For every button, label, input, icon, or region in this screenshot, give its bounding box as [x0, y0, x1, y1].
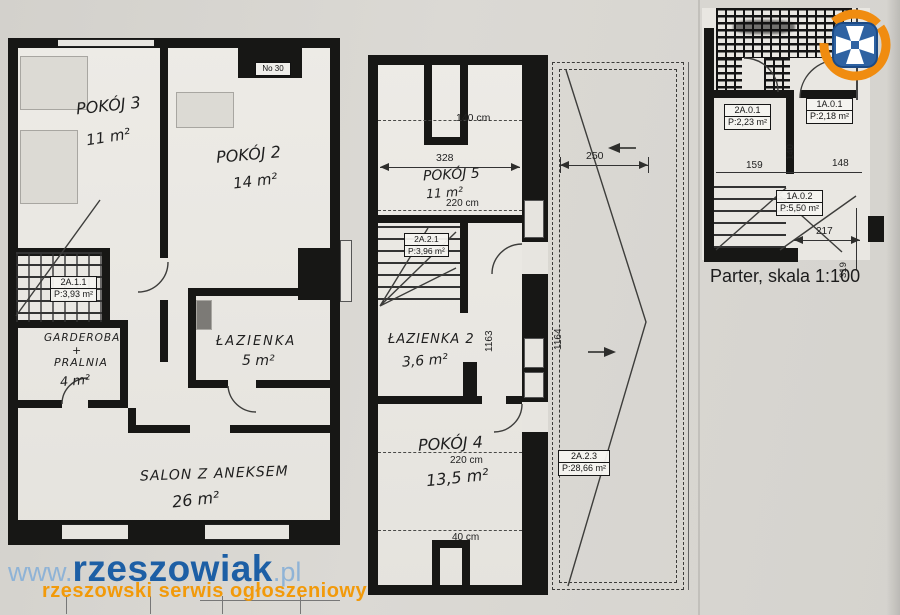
door-arc: [494, 404, 522, 432]
dim-220cm-bottom: 220 cm: [450, 455, 483, 466]
dim-328: 328: [436, 152, 454, 164]
door-arc: [138, 262, 168, 292]
door-arc: [744, 58, 778, 92]
stair-area-box: 2A.1.1 P:3,93 m²: [50, 276, 97, 302]
room-id: 2A.0.1: [725, 105, 770, 117]
dim-220cm-top: 220 cm: [446, 198, 479, 209]
stair-area-box: 2A.2.1 P:3,96 m²: [404, 233, 449, 257]
room-label-pralnia: PRALNIA: [54, 356, 108, 369]
room-area-box-1a02: 1A.0.2 P:5,50 m²: [776, 190, 823, 216]
dim-1164: 1164: [553, 294, 564, 350]
room-label-lazienka2: ŁAZIENKA 2: [388, 332, 475, 347]
arrowhead: [380, 163, 389, 171]
rzeszowiak-logo: [816, 6, 894, 84]
arrowhead: [560, 161, 569, 169]
dim-140cm-top: 140 cm: [456, 112, 490, 124]
dim-140: 140: [785, 124, 796, 160]
plan-caption: Parter, skala 1:100: [710, 266, 860, 287]
arrowhead: [639, 161, 648, 169]
plan-number-tag: No 30: [255, 62, 291, 76]
door-arc: [492, 244, 522, 274]
scanned-floor-plan-photo: No 30 POKÓJ 3 11 m² POKÓJ 2 14 m² 2A.1.1…: [0, 0, 900, 615]
room-label-lazienka: ŁAZIENKA: [216, 334, 296, 349]
attic-id: 2A.2.3: [559, 451, 609, 463]
room-area: P:2,23 m²: [725, 117, 770, 128]
dim-148: 148: [832, 158, 849, 169]
dim-159: 159: [746, 160, 763, 171]
room-label-garderoba: GARDEROBA: [44, 332, 120, 344]
room-area: P:2,18 m²: [807, 111, 852, 122]
area-label-lazienka: 5 m²: [242, 353, 275, 369]
arrowhead: [851, 236, 860, 244]
room-id: 1A.0.1: [807, 99, 852, 111]
arrowhead: [511, 163, 520, 171]
stair-area: P:3,93 m²: [51, 289, 96, 300]
dim-1163: 1163: [484, 296, 495, 352]
area-label-garderoba: 4 m²: [59, 373, 90, 391]
attic-area-box: 2A.2.3 P:28,66 m²: [558, 450, 610, 476]
area-label-lazienka2: 3,6 m²: [401, 351, 448, 370]
room-label-pokoj5: POKÓJ 5: [423, 166, 481, 185]
stair-id: 2A.2.1: [405, 234, 448, 246]
stair-area: P:3,96 m²: [405, 246, 448, 257]
room-id: 1A.0.2: [777, 191, 822, 203]
attic-area: P:28,66 m²: [559, 463, 609, 474]
stair-id: 2A.1.1: [51, 277, 96, 289]
room-area-box-2a01: 2A.0.1 P:2,23 m²: [724, 104, 771, 130]
room-area: P:5,50 m²: [777, 203, 822, 214]
dim-40cm-bottom: 40 cm: [452, 532, 479, 543]
dim-217: 217: [816, 226, 833, 237]
door-arc: [228, 386, 256, 412]
room-label-pokoj4: POKÓJ 4: [418, 432, 484, 454]
watermark-tagline: rzeszowski serwis ogłoszeniowy: [42, 580, 367, 603]
dim-250: 250: [586, 150, 604, 162]
room-area-box-1a01: 1A.0.1 P:2,18 m²: [806, 98, 853, 124]
arrow-icon: [604, 347, 616, 357]
arrow-icon: [608, 143, 620, 153]
